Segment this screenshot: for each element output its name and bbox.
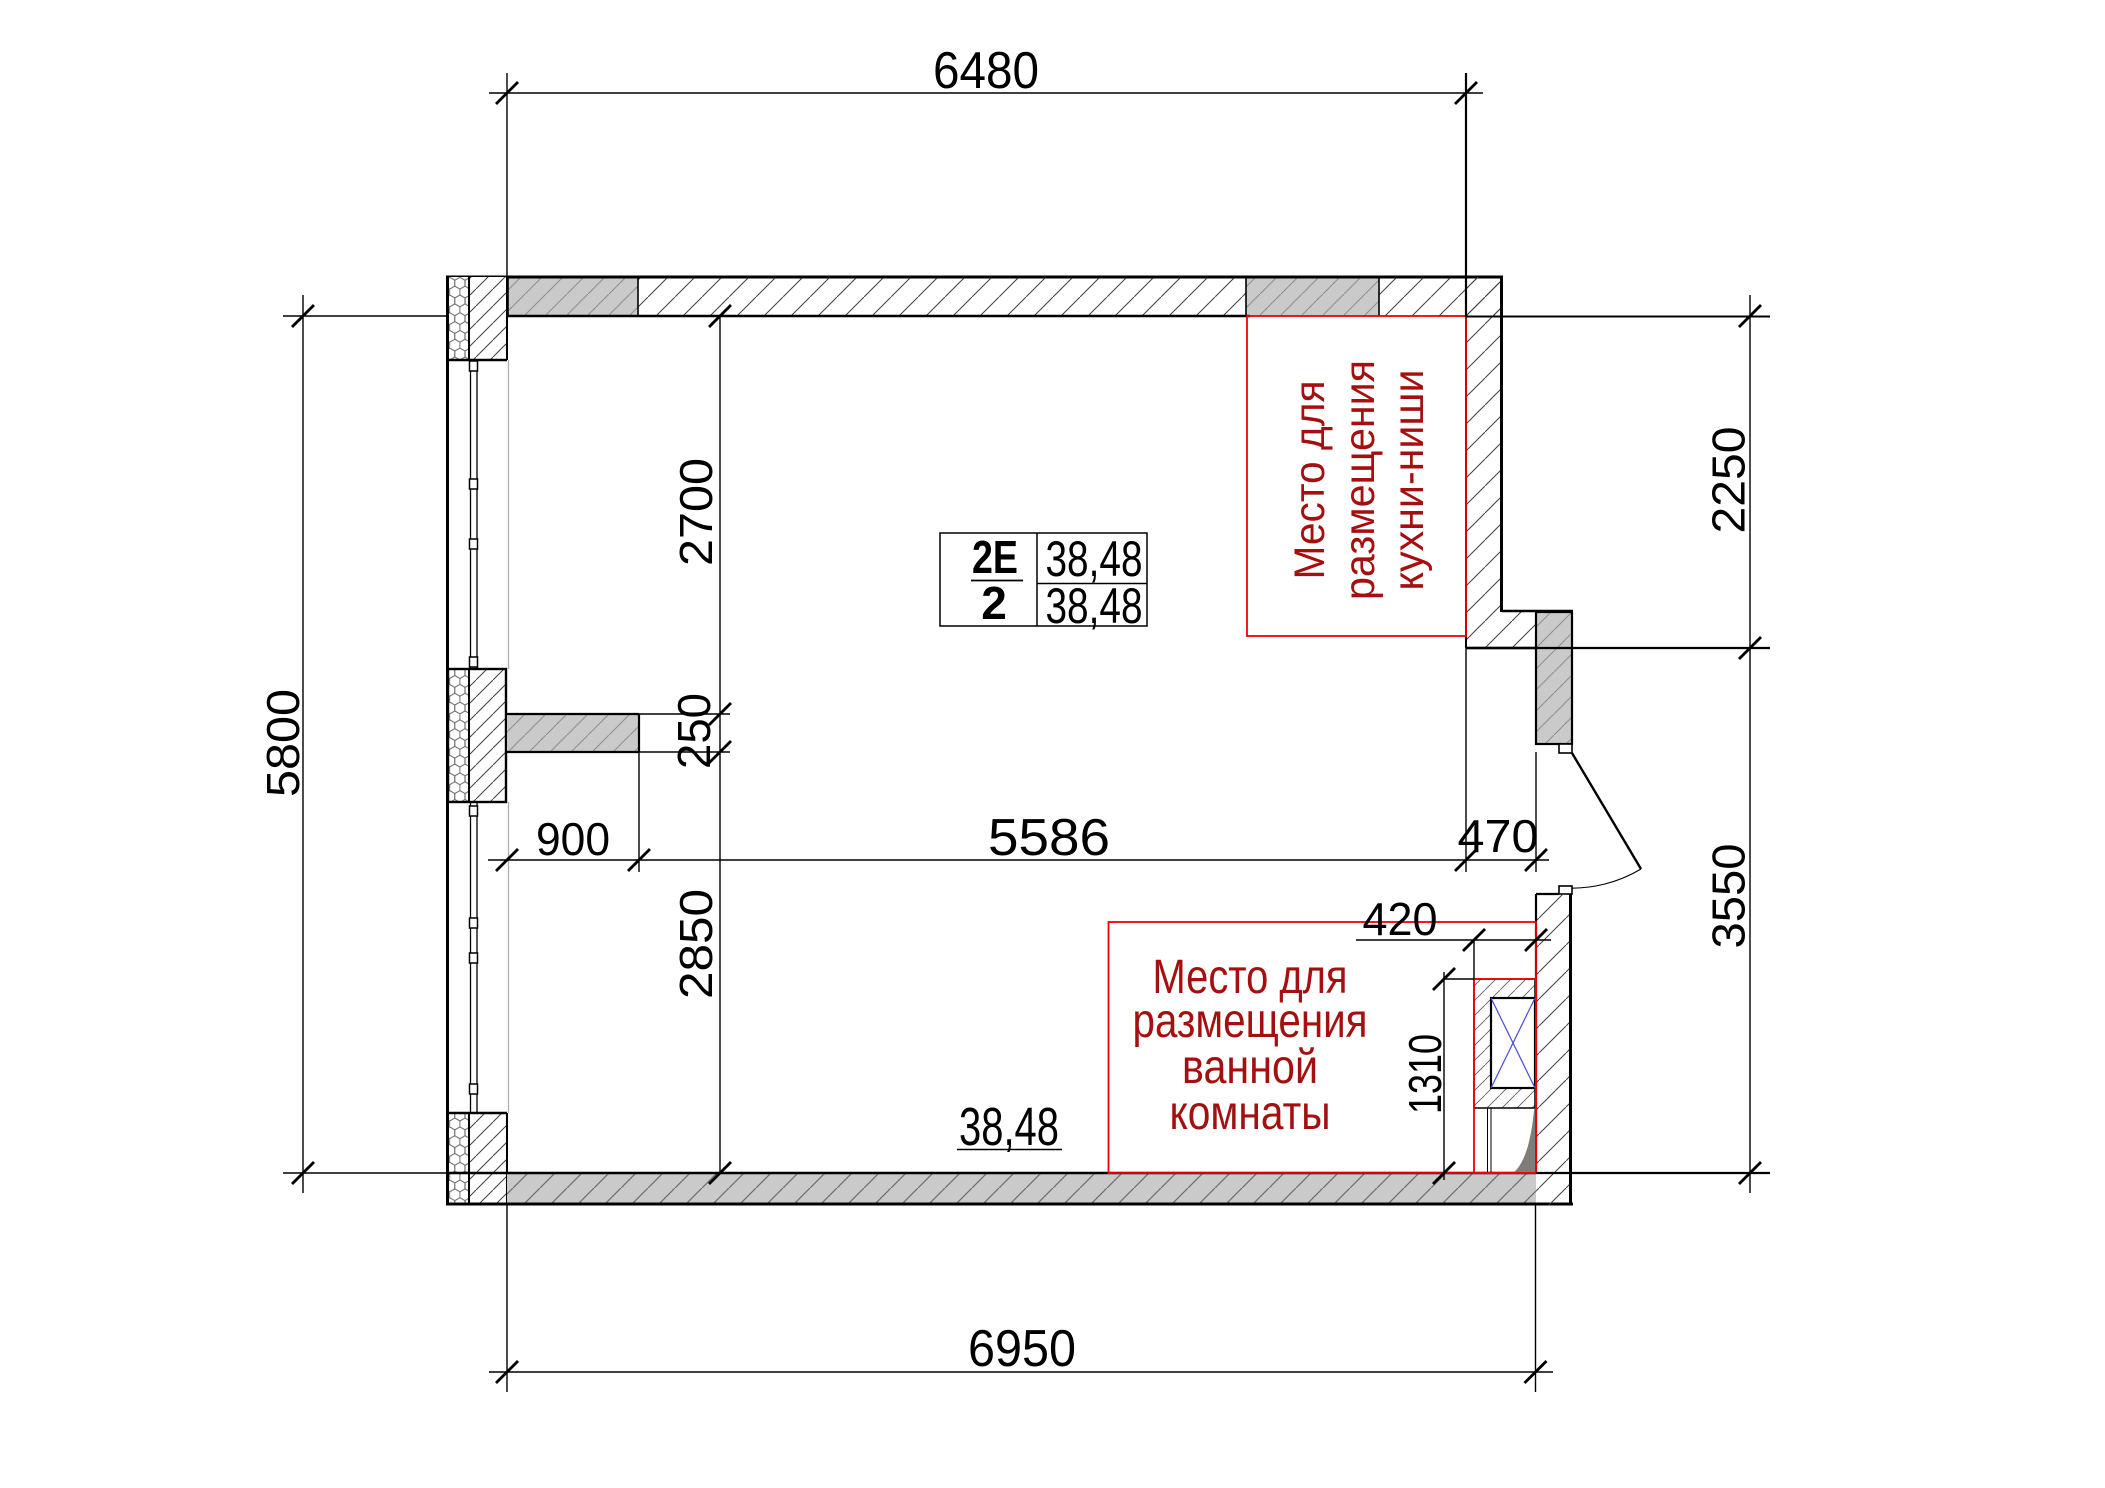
svg-text:6480: 6480: [933, 42, 1039, 100]
svg-text:5586: 5586: [988, 809, 1110, 867]
svg-text:Место для: Место для: [1286, 381, 1334, 580]
svg-text:900: 900: [536, 813, 610, 865]
svg-text:3550: 3550: [1703, 844, 1755, 949]
svg-text:кухни-ниши: кухни-ниши: [1385, 370, 1433, 591]
svg-text:38,48: 38,48: [1046, 578, 1143, 634]
svg-text:2Е: 2Е: [972, 531, 1018, 583]
svg-text:6950: 6950: [968, 1320, 1076, 1378]
svg-text:2700: 2700: [670, 458, 722, 566]
svg-text:250: 250: [668, 693, 720, 769]
svg-text:2250: 2250: [1703, 427, 1755, 534]
svg-text:комнаты: комнаты: [1170, 1087, 1331, 1140]
svg-text:420: 420: [1363, 893, 1438, 945]
svg-text:размещения: размещения: [1336, 360, 1384, 600]
svg-text:2850: 2850: [670, 889, 722, 999]
svg-text:470: 470: [1458, 810, 1539, 862]
svg-text:2: 2: [981, 577, 1007, 629]
svg-text:1310: 1310: [1399, 1034, 1451, 1114]
svg-text:38,48: 38,48: [959, 1097, 1059, 1157]
svg-text:5800: 5800: [257, 689, 309, 797]
